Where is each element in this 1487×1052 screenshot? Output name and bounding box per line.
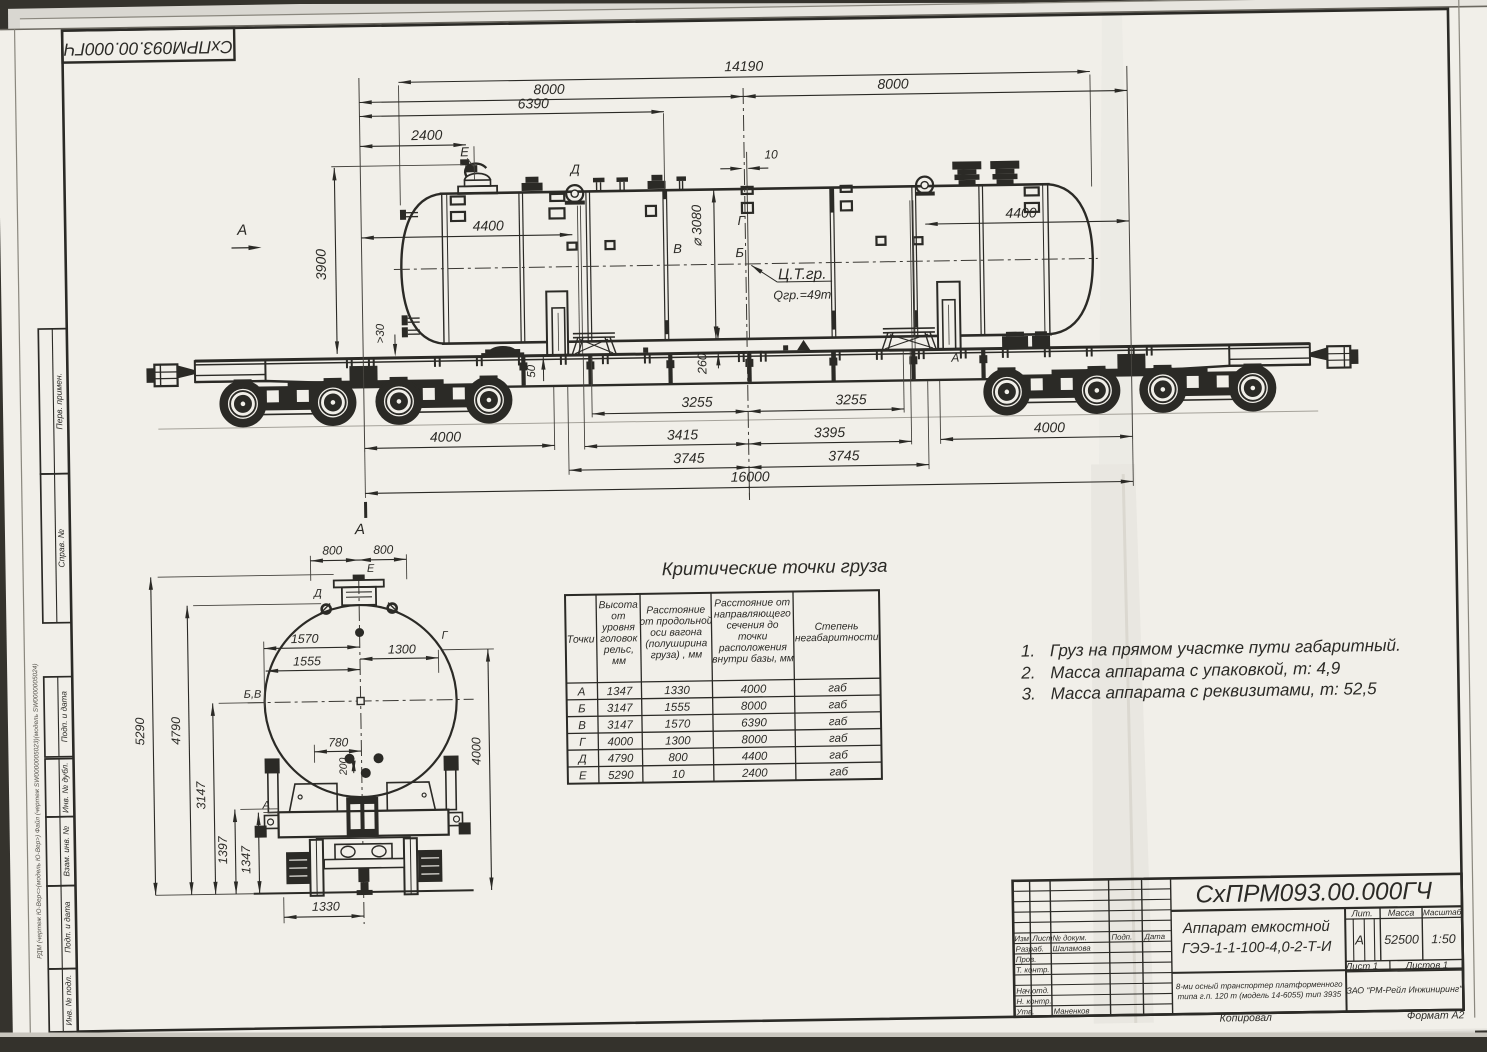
svg-text:Изм: Изм: [1014, 934, 1029, 943]
svg-text:Высота: Высота: [599, 600, 639, 612]
svg-text:мм: мм: [612, 656, 626, 667]
svg-text:Взам. инв. №: Взам. инв. №: [62, 826, 72, 877]
svg-text:Подп. и дата: Подп. и дата: [63, 901, 73, 953]
svg-text:уровня: уровня: [601, 622, 636, 634]
svg-text:1570: 1570: [291, 632, 319, 646]
svg-text:Копировал: Копировал: [1220, 1012, 1272, 1025]
svg-text:1330: 1330: [664, 685, 690, 697]
svg-text:5290: 5290: [608, 770, 634, 782]
svg-text:Листов 1: Листов 1: [1405, 960, 1449, 972]
svg-text:50: 50: [526, 364, 538, 378]
svg-text:Е: Е: [367, 563, 375, 575]
svg-text:1:50: 1:50: [1431, 932, 1456, 946]
svg-text:Г: Г: [737, 213, 745, 228]
svg-text:Инв. № подл.: Инв. № подл.: [64, 975, 74, 1026]
svg-text:3745: 3745: [828, 447, 860, 463]
svg-text:Лист 1: Лист 1: [1345, 961, 1379, 973]
svg-text:Формат А2: Формат А2: [1407, 1009, 1465, 1022]
svg-text:4000: 4000: [741, 684, 767, 696]
svg-text:негабаритности: негабаритности: [795, 631, 879, 644]
svg-text:головок: головок: [600, 633, 639, 645]
svg-text:габ: габ: [828, 699, 847, 711]
svg-text:Лист: Лист: [1031, 934, 1053, 943]
svg-text:Инв. № дубл.: Инв. № дубл.: [61, 762, 71, 812]
svg-text:3745: 3745: [673, 450, 705, 466]
svg-text:200: 200: [338, 757, 350, 776]
svg-text:6390: 6390: [741, 717, 767, 729]
svg-text:Маненков: Маненков: [1054, 1006, 1090, 1016]
svg-text:1555: 1555: [664, 702, 690, 714]
svg-text:4000: 4000: [1034, 419, 1066, 435]
svg-text:Е: Е: [579, 770, 587, 782]
svg-text:4000: 4000: [430, 428, 462, 444]
svg-text:1555: 1555: [293, 654, 321, 668]
svg-text:3255: 3255: [835, 391, 867, 407]
svg-text:260: 260: [695, 353, 709, 375]
svg-text:Справ. №: Справ. №: [56, 529, 67, 568]
svg-text:Шаламова: Шаламова: [1053, 944, 1092, 954]
svg-text:1300: 1300: [388, 642, 416, 656]
svg-text:Пров.: Пров.: [1016, 955, 1037, 964]
svg-text:габ: габ: [829, 749, 848, 761]
svg-text:3147: 3147: [607, 702, 633, 714]
svg-text:3255: 3255: [681, 393, 713, 409]
svg-text:Аппарат емкостной: Аппарат емкостной: [1182, 918, 1331, 937]
svg-text:Т. контр.: Т. контр.: [1016, 965, 1050, 975]
svg-text:4400: 4400: [472, 217, 504, 233]
svg-text:780: 780: [328, 735, 349, 749]
svg-text:1347: 1347: [607, 686, 633, 698]
svg-text:Утв.: Утв.: [1016, 1007, 1035, 1016]
svg-text:габ: габ: [830, 766, 849, 778]
svg-text:2.: 2.: [1020, 663, 1035, 682]
svg-text:8000: 8000: [741, 734, 767, 746]
svg-text:52500: 52500: [1384, 932, 1419, 947]
svg-text:В: В: [673, 241, 682, 256]
svg-text:1397: 1397: [216, 835, 230, 864]
svg-text:Дата: Дата: [1143, 932, 1165, 941]
svg-text:3900: 3900: [313, 249, 329, 281]
svg-text:А: А: [354, 521, 365, 538]
svg-text:4790: 4790: [608, 753, 634, 765]
svg-text:4000: 4000: [469, 737, 483, 765]
svg-text:расположения: расположения: [718, 642, 788, 654]
svg-text:Степень: Степень: [815, 621, 859, 633]
svg-text:СхПРМ093.00.000ГЧ: СхПРМ093.00.000ГЧ: [63, 37, 233, 60]
svg-text:8000: 8000: [877, 75, 909, 91]
svg-text:Д: Д: [312, 588, 322, 600]
svg-text:10: 10: [672, 769, 686, 781]
svg-text:6390: 6390: [518, 95, 550, 111]
svg-text:Расстояние: Расстояние: [646, 605, 705, 617]
svg-text:1.: 1.: [1021, 641, 1035, 660]
svg-text:3147: 3147: [194, 781, 208, 810]
svg-text:1300: 1300: [665, 735, 691, 747]
svg-text:5290: 5290: [133, 717, 147, 745]
svg-text:Масштаб: Масштаб: [1423, 908, 1462, 918]
svg-text:от продольной: от продольной: [639, 616, 713, 628]
svg-text:Д: Д: [576, 754, 586, 766]
svg-text:Д: Д: [569, 162, 580, 177]
svg-text:Б,В: Б,В: [244, 689, 262, 701]
svg-text:от: от: [611, 611, 626, 622]
svg-text:1570: 1570: [665, 718, 691, 730]
svg-text:Г: Г: [579, 737, 586, 749]
svg-text:16000: 16000: [731, 468, 770, 485]
svg-text:10: 10: [764, 147, 778, 161]
svg-text:2400: 2400: [410, 127, 443, 144]
svg-text:>30: >30: [375, 323, 387, 343]
svg-text:А: А: [1354, 932, 1364, 947]
svg-text:Точки: Точки: [567, 633, 595, 645]
svg-text:рельс,: рельс,: [603, 645, 634, 656]
svg-text:8000: 8000: [741, 700, 767, 712]
svg-text:внутри базы, мм: внутри базы, мм: [712, 652, 794, 665]
svg-text:800: 800: [668, 752, 688, 764]
svg-text:ЗАО “РМ-Рейл Инжиниринг”: ЗАО “РМ-Рейл Инжиниринг”: [1346, 984, 1463, 996]
svg-text:4000: 4000: [607, 736, 633, 748]
svg-text:А: А: [262, 799, 271, 811]
svg-text:Ц.Т.гр.: Ц.Т.гр.: [778, 266, 827, 284]
svg-text:Масса: Масса: [1388, 908, 1415, 918]
svg-text:Подп.: Подп.: [1111, 932, 1132, 941]
svg-text:800: 800: [322, 543, 343, 557]
svg-text:направляющего: направляющего: [714, 608, 791, 620]
svg-text:оси вагона: оси вагона: [650, 627, 702, 639]
svg-text:А: А: [577, 686, 586, 698]
svg-text:⌀ 3080: ⌀ 3080: [689, 204, 705, 247]
svg-text:габ: габ: [829, 716, 848, 728]
svg-text:А: А: [950, 351, 959, 365]
svg-text:14190: 14190: [724, 58, 763, 75]
svg-text:Б: Б: [735, 245, 744, 260]
svg-text:3147: 3147: [607, 719, 633, 731]
svg-text:Е: Е: [460, 144, 469, 159]
svg-text:Нач.отд.: Нач.отд.: [1016, 986, 1049, 996]
svg-text:3.: 3.: [1021, 684, 1035, 703]
svg-text:1347: 1347: [239, 845, 253, 874]
svg-text:№ докум.: № докум.: [1052, 933, 1086, 943]
svg-text:3415: 3415: [667, 426, 699, 442]
svg-text:Подп. и дата: Подп. и дата: [59, 691, 69, 743]
svg-text:Критические точки груза: Критические точки груза: [662, 555, 888, 580]
svg-text:1330: 1330: [312, 899, 340, 913]
svg-text:4400: 4400: [742, 751, 768, 763]
svg-text:А: А: [236, 222, 247, 239]
svg-text:Расстояние от: Расстояние от: [714, 597, 791, 609]
svg-text:сечения до: сечения до: [726, 620, 778, 632]
svg-text:Б: Б: [578, 703, 586, 715]
svg-text:800: 800: [373, 543, 394, 557]
svg-text:Лит.: Лит.: [1350, 908, 1372, 918]
svg-text:ГЭЭ-1-1-100-4,0-2-Т-И: ГЭЭ-1-1-100-4,0-2-Т-И: [1182, 939, 1332, 957]
svg-text:3395: 3395: [814, 424, 846, 440]
svg-text:Qгр.=49т: Qгр.=49т: [773, 288, 831, 303]
svg-text:4400: 4400: [1005, 204, 1037, 220]
svg-text:Н. контр.: Н. контр.: [1016, 997, 1051, 1007]
svg-text:габ: габ: [828, 682, 847, 694]
svg-text:Перв. примен.: Перв. примен.: [53, 373, 64, 430]
svg-text:габ: габ: [829, 733, 848, 745]
svg-text:(полуширина: (полуширина: [645, 638, 707, 650]
svg-text:В: В: [578, 720, 586, 732]
svg-text:Разраб.: Разраб.: [1016, 944, 1044, 953]
svg-text:точки: точки: [738, 631, 768, 642]
svg-text:СхПРМ093.00.000ГЧ: СхПРМ093.00.000ГЧ: [1195, 878, 1433, 909]
svg-text:груза) , мм: груза) , мм: [651, 649, 703, 661]
svg-text:2400: 2400: [741, 767, 768, 779]
svg-text:4790: 4790: [169, 717, 183, 745]
